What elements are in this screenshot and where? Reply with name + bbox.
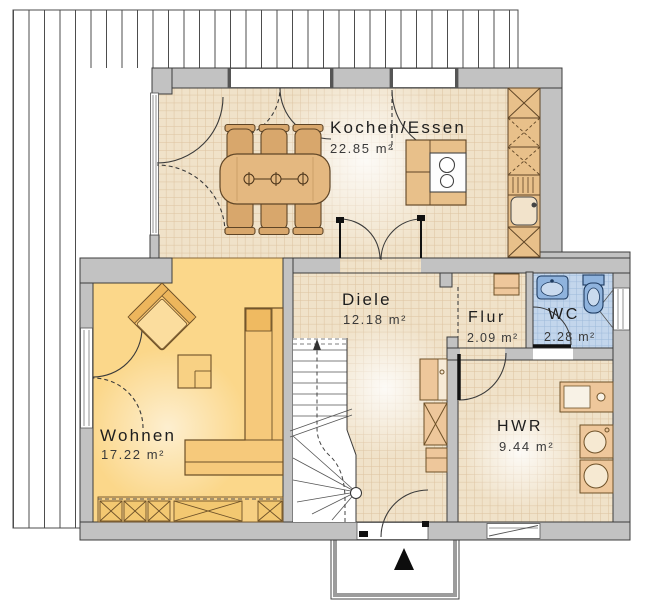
hwr-window bbox=[487, 524, 540, 539]
terrace-door-north-2 bbox=[390, 69, 458, 88]
kitchen-diele-door-opening bbox=[340, 259, 421, 273]
sideboard bbox=[98, 497, 283, 522]
room-area-kochen-essen: 22.85 m² bbox=[330, 141, 394, 156]
burner bbox=[441, 175, 454, 188]
burner bbox=[440, 158, 455, 173]
dryer bbox=[580, 460, 613, 493]
flur-cabinet bbox=[494, 274, 519, 295]
terrace-door-west-wohnen bbox=[81, 328, 93, 428]
side-table bbox=[178, 355, 211, 388]
terrace-door-north-1 bbox=[228, 69, 333, 88]
floor-plan-drawing: Kochen/Essen 22.85 m² Diele 12.18 m² Flu… bbox=[0, 0, 656, 610]
stair-newel-post bbox=[351, 488, 362, 499]
room-area-diele: 12.18 m² bbox=[343, 312, 407, 327]
kitchen-sink bbox=[511, 197, 537, 225]
room-area-flur: 2.09 m² bbox=[467, 331, 518, 345]
front-door-opening bbox=[357, 521, 429, 540]
hwr-door-opening bbox=[460, 349, 505, 360]
wc-sink bbox=[537, 276, 568, 299]
terrace-door-west-kitchen bbox=[151, 93, 159, 235]
room-label-wc: WC bbox=[548, 306, 580, 323]
laundry-sink-counter bbox=[560, 382, 613, 412]
floor-plan-page: Kochen/Essen 22.85 m² Diele 12.18 m² Flu… bbox=[0, 0, 656, 610]
room-area-wc: 2.28 m² bbox=[544, 330, 595, 344]
room-label-wohnen: Wohnen bbox=[100, 426, 176, 445]
wc-door-opening bbox=[533, 349, 573, 360]
wc-toilet bbox=[583, 275, 604, 313]
room-label-diele: Diele bbox=[342, 290, 392, 309]
kitchen-island bbox=[406, 140, 466, 205]
room-area-hwr: 9.44 m² bbox=[499, 439, 554, 454]
room-label-hwr: HWR bbox=[497, 418, 543, 435]
washing-machine bbox=[580, 425, 613, 458]
room-label-flur: Flur bbox=[468, 309, 506, 326]
room-area-wohnen: 17.22 m² bbox=[101, 447, 165, 462]
room-label-kochen-essen: Kochen/Essen bbox=[330, 118, 466, 137]
dining-set bbox=[220, 125, 330, 235]
kitchen-counter bbox=[508, 88, 540, 257]
